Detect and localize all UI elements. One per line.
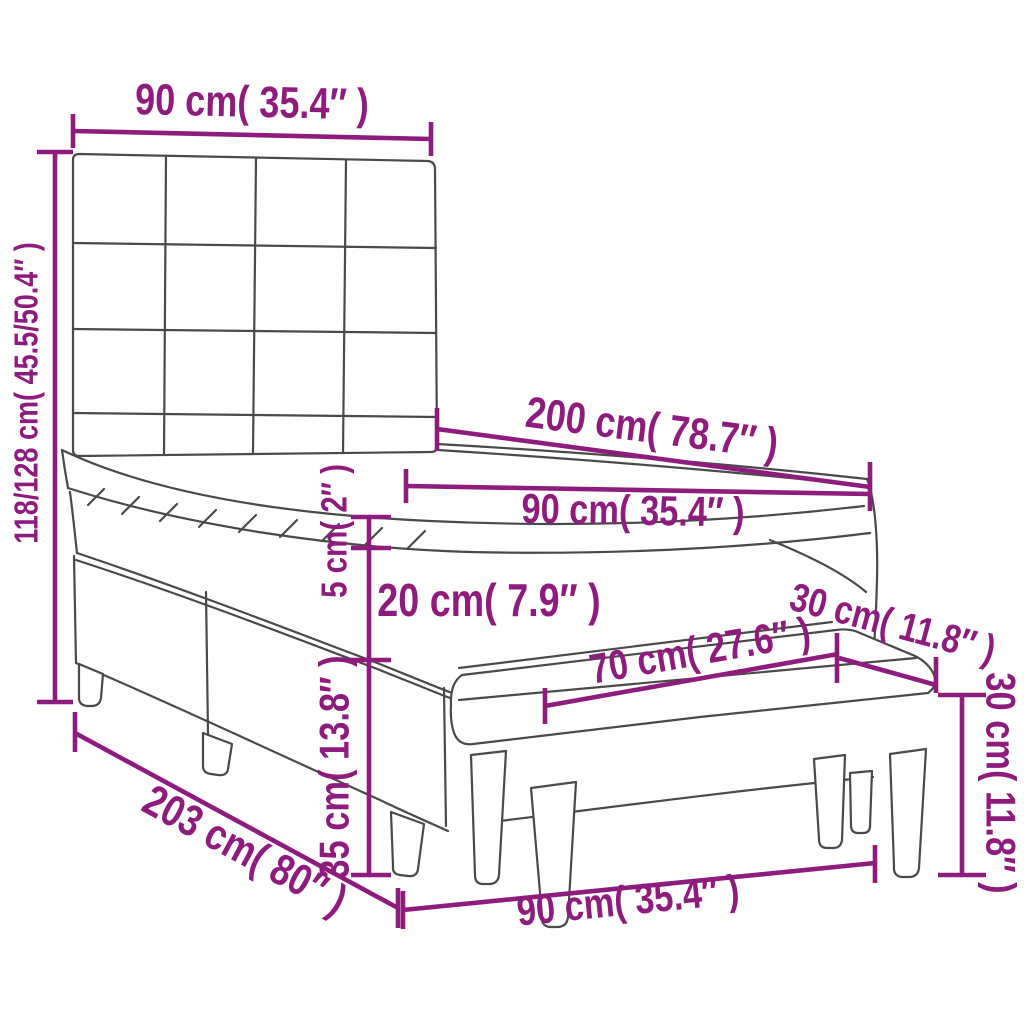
dim-label-overall-height: 118/128 cm( 45.5/50.4″ ) [9,242,45,544]
headboard [73,154,437,456]
base-panel-seam [444,688,446,826]
mattress-far-edge-piping [438,450,866,486]
bed-outline [62,154,877,876]
mattress-left-edge [70,492,77,553]
bed-leg [79,664,103,706]
dimension-diagram-page: 90 cm( 35.4″ ) 118/128 cm( 45.5/50.4″ ) … [0,0,1024,1024]
dim-label-bench-height: 30 cm( 11.8″ ) [976,672,1023,893]
bench-leg-back-right [814,755,845,848]
bed-dimension-diagram: 90 cm( 35.4″ ) 118/128 cm( 45.5/50.4″ ) … [0,0,1024,1024]
bed-leg [203,733,232,775]
dim-label-base-height: 35 cm( 13.8″ ) [311,655,358,878]
headboard-grid-vertical [253,158,256,454]
topper-left-edge [62,450,68,488]
headboard-grid-horizontal [73,413,437,417]
bench-leg-inner-right [850,771,872,833]
dim-label-mattress-height: 20 cm( 7.9″ ) [377,574,600,625]
bed-leg [391,812,424,876]
base-bottom-edge [76,663,448,831]
base-panel-seam [206,592,208,734]
base-left-edge [74,556,76,663]
headboard-grid-vertical [164,156,166,454]
dim-label-headboard-width: 90 cm( 35.4″ ) [135,75,370,130]
topper-bottom-edge [68,488,870,553]
bench-leg-back-left [471,751,506,884]
dim-headboard-width: 90 cm( 35.4″ ) [73,75,431,156]
dim-label-mattress-width: 90 cm( 35.4″ ) [521,486,745,537]
headboard-grid-vertical [343,160,346,453]
bench-leg-front-right [890,749,926,877]
dim-line [73,131,431,139]
dim-bench-height: 30 cm( 11.8″ ) [938,672,1024,893]
dim-overall-height: 118/128 cm( 45.5/50.4″ ) [9,152,73,702]
dim-label-topper-height: 5 cm( 2″ ) [314,464,354,598]
